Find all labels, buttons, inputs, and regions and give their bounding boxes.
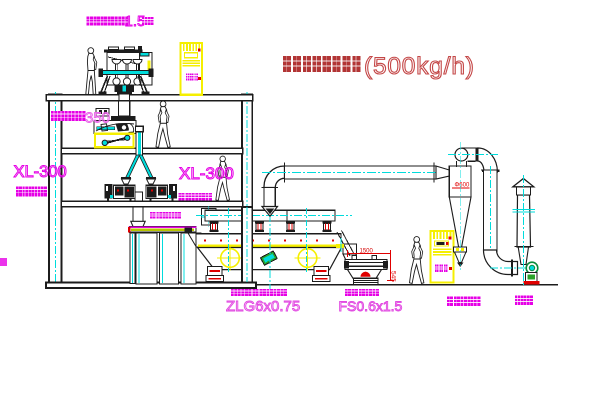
- svg-text:1500: 1500: [360, 249, 374, 255]
- svg-text:545: 545: [390, 271, 397, 282]
- svg-text:XL-300: XL-300: [14, 163, 67, 181]
- svg-text:ZLG6x0.75: ZLG6x0.75: [226, 298, 300, 315]
- svg-text:XL-300: XL-300: [179, 164, 234, 183]
- svg-text:(500kg/h): (500kg/h): [364, 53, 475, 80]
- svg-text:350: 350: [85, 110, 110, 127]
- svg-text:FS0.6x1.5: FS0.6x1.5: [339, 298, 403, 314]
